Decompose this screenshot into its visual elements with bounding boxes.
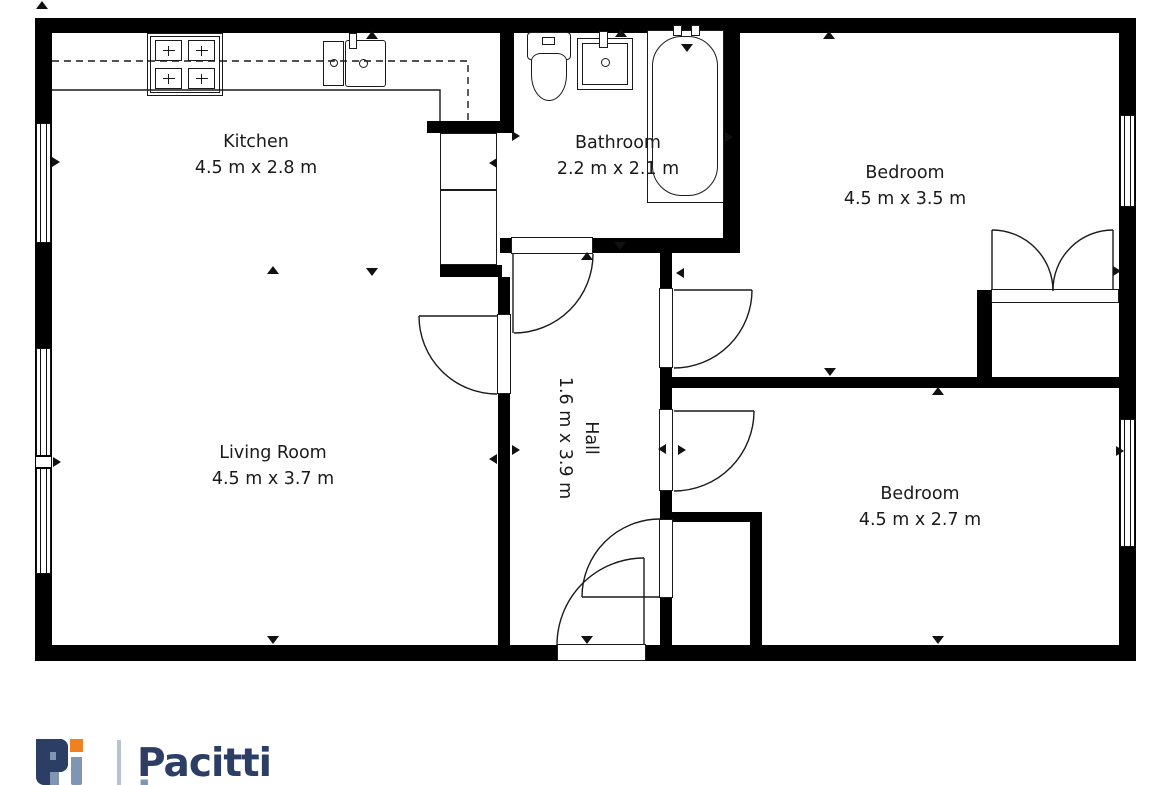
direction-marker-icon: [53, 457, 61, 467]
direction-marker-icon: [823, 31, 835, 39]
room-label-bathroom: Bathroom2.2 m x 2.1 m: [557, 130, 679, 182]
burner-icon: [188, 40, 215, 61]
living-room-door-arc: [419, 316, 497, 394]
burner-icon: [155, 40, 182, 61]
room-label-kitchen: Kitchen4.5 m x 2.8 m: [195, 129, 317, 181]
direction-marker-icon: [678, 445, 686, 455]
window-pane: [1124, 115, 1131, 207]
room-name: Kitchen: [195, 129, 317, 155]
kitchen-tap-icon: [349, 33, 357, 49]
direction-marker-icon: [36, 1, 48, 9]
direction-marker-icon: [512, 445, 520, 455]
room-name: Living Room: [212, 440, 334, 466]
monogram-j-stem: [71, 757, 82, 785]
room-name: Bedroom: [859, 481, 981, 507]
room-name: Bathroom: [557, 130, 679, 156]
window-pane: [1124, 419, 1131, 547]
bedroom-1-doorframe: [659, 288, 673, 368]
drain-icon: [330, 59, 338, 67]
room-dimensions: 4.5 m x 2.8 m: [195, 155, 317, 181]
direction-marker-icon: [932, 636, 944, 644]
room-label-bedroom-1: Bedroom4.5 m x 3.5 m: [844, 160, 966, 212]
room-dimensions: 4.5 m x 3.5 m: [844, 186, 966, 212]
direction-marker-icon: [824, 368, 836, 376]
living-room-window-mullion: [36, 455, 51, 469]
direction-marker-icon: [676, 268, 684, 278]
wardrobe-door-arc: [1053, 230, 1113, 290]
logo-separator: [117, 740, 121, 785]
bedroom-2-window: [1120, 419, 1135, 547]
room-label-living-room: Living Room4.5 m x 3.7 m: [212, 440, 334, 492]
bathroom-tap-icon: [599, 31, 608, 48]
kitchen-unit-lower: [440, 190, 497, 265]
bedroom-1-door-arc: [674, 290, 752, 368]
entrance-doorframe: [557, 644, 646, 661]
direction-marker-icon: [52, 157, 60, 167]
direction-marker-icon: [267, 266, 279, 274]
wardrobe-door-arc: [992, 230, 1053, 291]
wall-closet-top: [672, 512, 760, 522]
brand-name-second: Jones: [137, 776, 251, 785]
toilet-bowl: [531, 53, 567, 101]
wall-outer-top: [35, 18, 1136, 33]
room-dimensions: 2.2 m x 2.1 m: [557, 156, 679, 182]
direction-marker-icon: [267, 636, 279, 644]
room-label-hall: Hall1.6 m x 3.9 m: [552, 377, 604, 499]
wall-closet-right: [750, 512, 762, 645]
room-name: Hall: [578, 377, 604, 499]
direction-marker-icon: [581, 252, 593, 260]
direction-marker-icon: [1116, 446, 1124, 456]
wall-bathroom-left: [500, 18, 514, 133]
room-name: Bedroom: [844, 160, 966, 186]
direction-marker-icon: [489, 454, 497, 464]
living-room-doorframe: [497, 314, 511, 394]
wall-wardrobe-stub: [977, 290, 992, 377]
room-label-bedroom-2: Bedroom4.5 m x 2.7 m: [859, 481, 981, 533]
bedroom-2-door-arc: [674, 411, 754, 491]
wall-bedroom-divider: [660, 377, 1120, 388]
entrance-door-arc: [557, 558, 644, 645]
floor-plan: Kitchen4.5 m x 2.8 mBathroom2.2 m x 2.1 …: [0, 0, 1170, 785]
bath-spout-icon: [681, 44, 693, 52]
direction-marker-icon: [366, 268, 378, 276]
bathroom-door-arc: [514, 254, 593, 333]
monogram-j-dot: [70, 739, 83, 752]
kitchen-counter-edge: [52, 90, 440, 121]
kitchen-sink-drainer: [323, 41, 344, 86]
direction-marker-icon: [614, 242, 626, 250]
stove-hob: [147, 33, 223, 96]
bath-tap-icon: [691, 25, 700, 36]
direction-marker-icon: [1113, 266, 1121, 276]
wall-kitchen-stub-bottom: [440, 265, 502, 277]
drain-icon: [601, 58, 610, 67]
drain-icon: [359, 59, 368, 68]
burner-icon: [155, 68, 182, 89]
direction-marker-icon: [489, 158, 497, 168]
window-pane: [40, 123, 47, 243]
kitchen-window: [36, 123, 51, 243]
wall-kitchen-stub-top: [427, 121, 514, 133]
closet-door-arc: [582, 519, 660, 597]
direction-marker-icon: [512, 131, 520, 141]
bedroom-1-window: [1120, 115, 1135, 207]
burner-icon: [188, 68, 215, 89]
room-dimensions: 1.6 m x 3.9 m: [552, 377, 578, 499]
wardrobe-frame: [991, 289, 1119, 303]
direction-marker-icon: [615, 29, 627, 37]
direction-marker-icon: [366, 31, 378, 39]
room-dimensions: 4.5 m x 3.7 m: [212, 466, 334, 492]
flush-button: [542, 37, 555, 45]
kitchen-counter-dashed: [52, 61, 468, 120]
closet-doorframe: [659, 519, 673, 598]
direction-marker-icon: [658, 444, 666, 454]
room-dimensions: 4.5 m x 2.7 m: [859, 507, 981, 533]
monogram-p-bowl: [42, 760, 68, 772]
direction-marker-icon: [725, 132, 733, 142]
direction-marker-icon: [932, 387, 944, 395]
direction-marker-icon: [581, 636, 593, 644]
bath-tap-icon: [673, 25, 682, 36]
